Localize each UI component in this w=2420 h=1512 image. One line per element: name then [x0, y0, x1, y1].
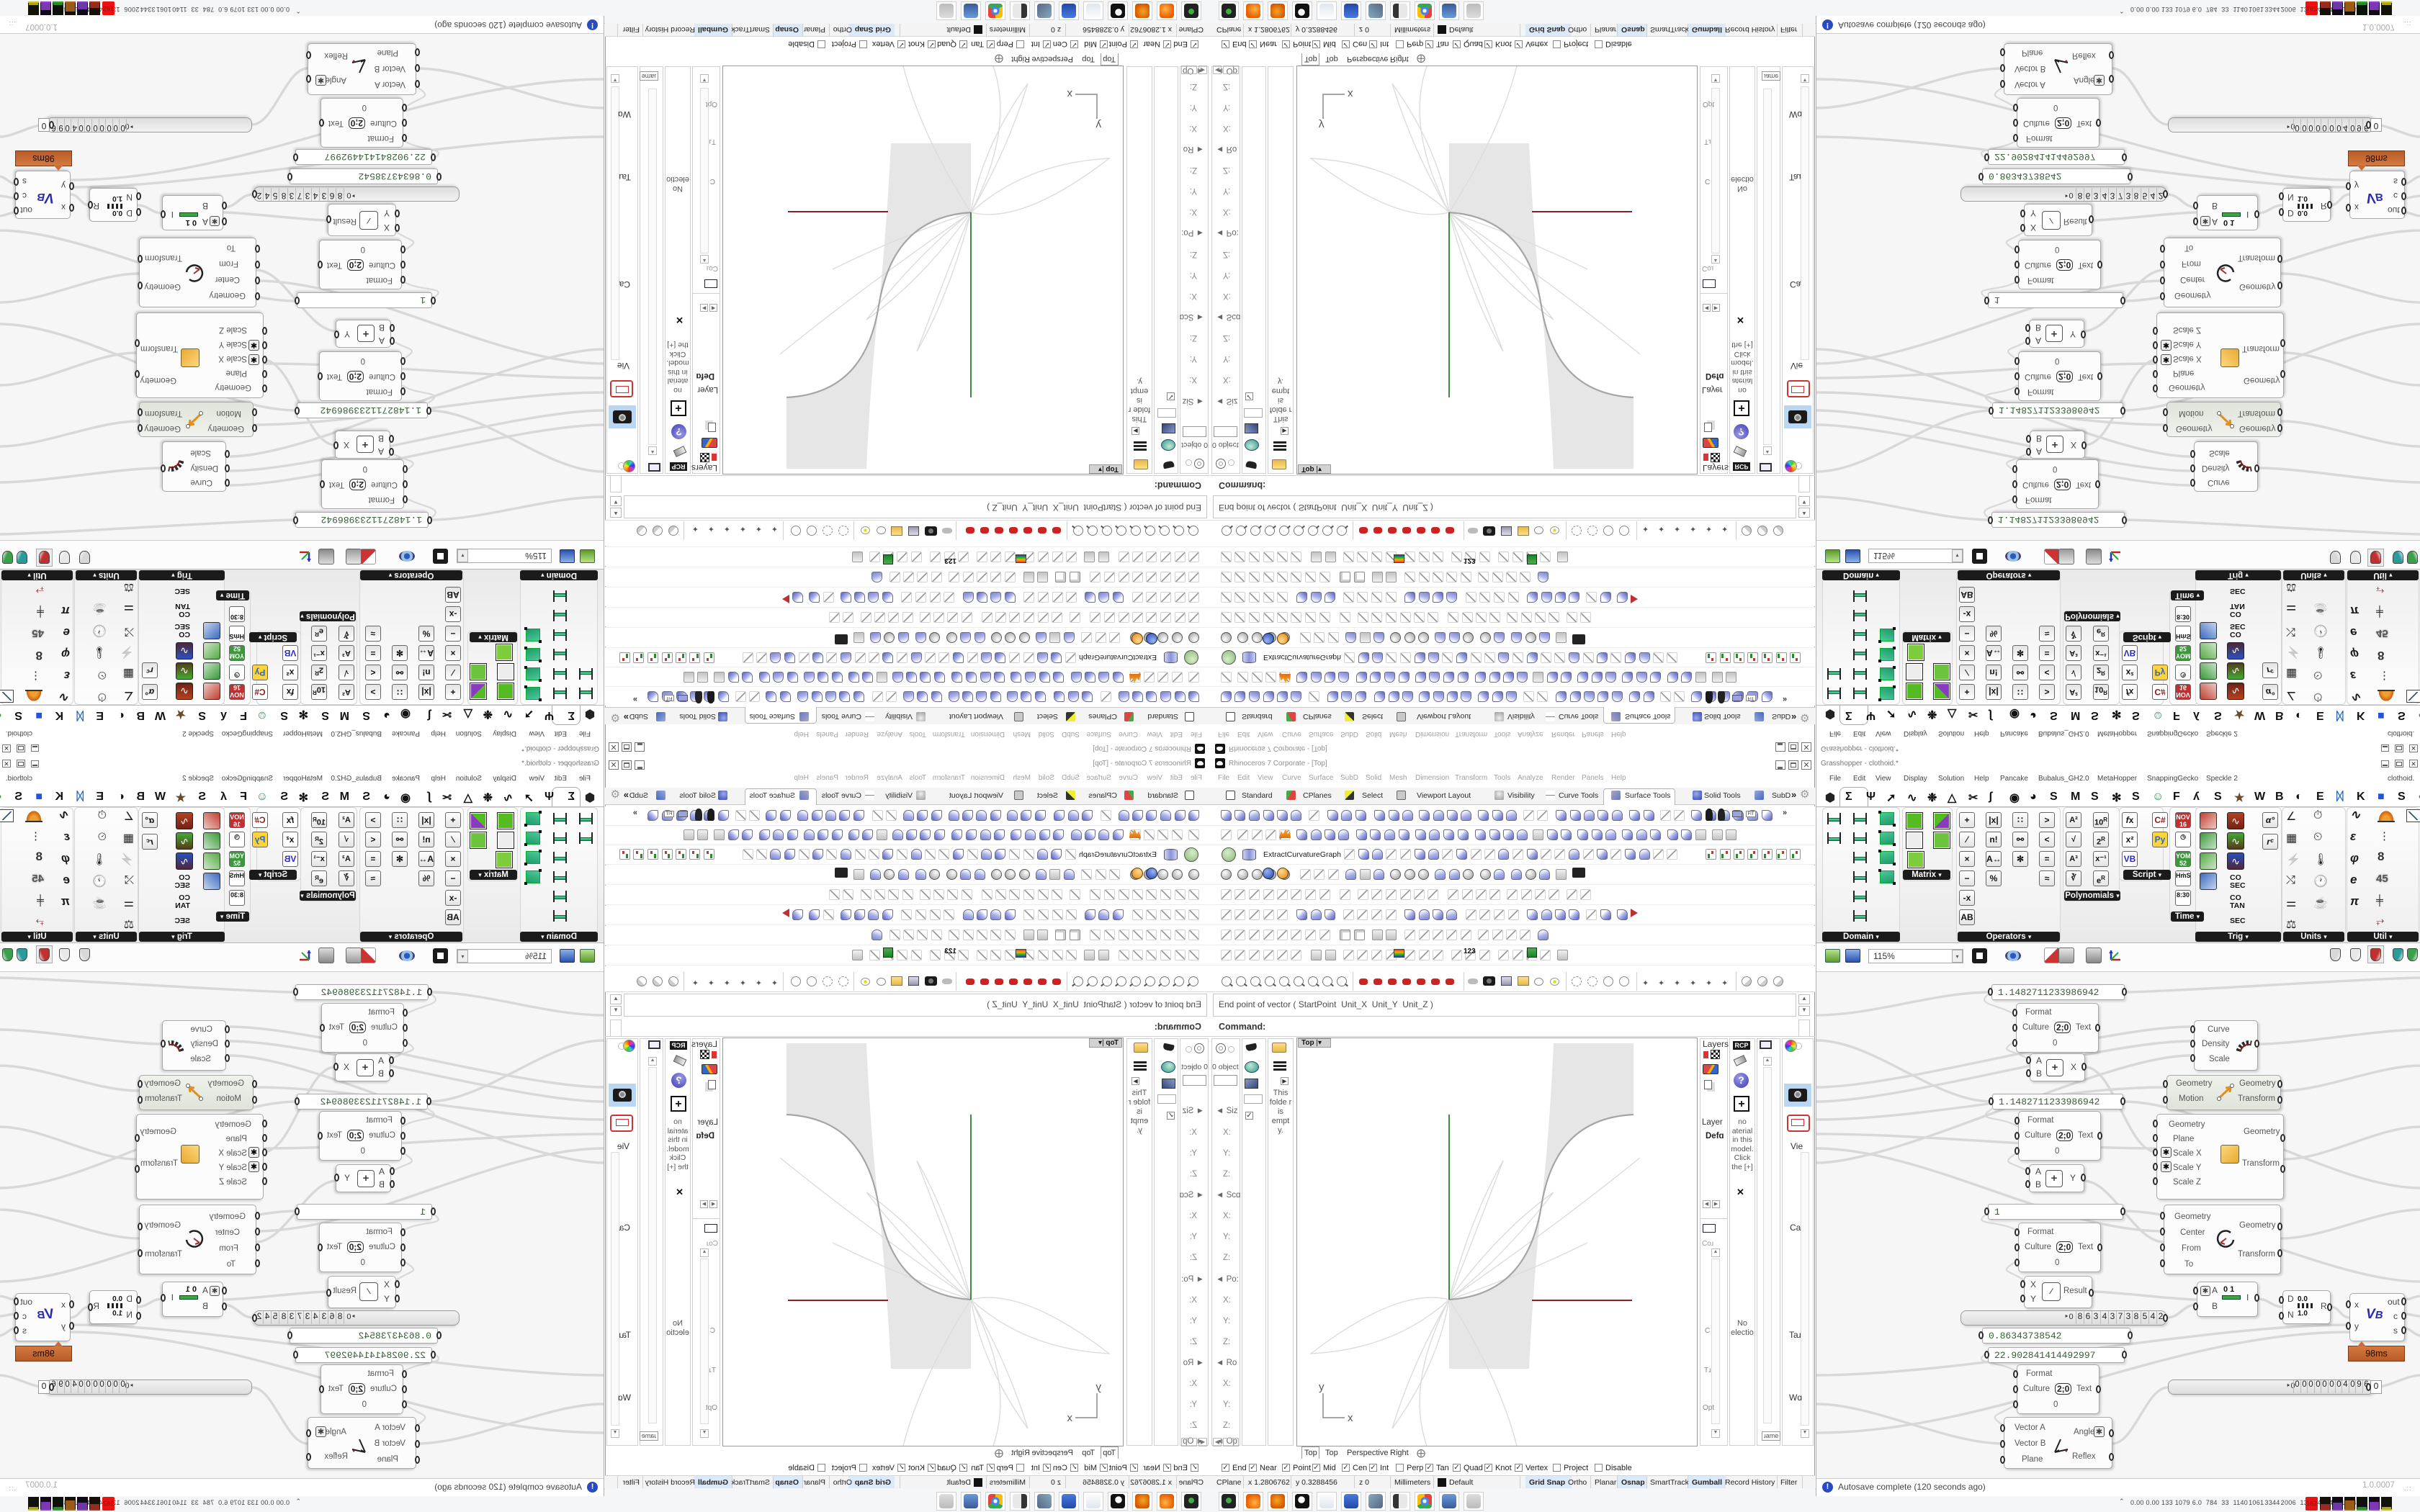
svg-text:y: y	[1319, 1381, 1325, 1393]
svg-text:x: x	[1348, 88, 1353, 100]
svg-text:x: x	[1348, 1412, 1353, 1424]
svg-text:x: x	[1067, 88, 1072, 100]
svg-text:x: x	[1067, 1412, 1072, 1424]
svg-text:y: y	[1095, 1381, 1101, 1393]
svg-text:y: y	[1095, 119, 1101, 131]
svg-text:y: y	[1319, 119, 1325, 131]
